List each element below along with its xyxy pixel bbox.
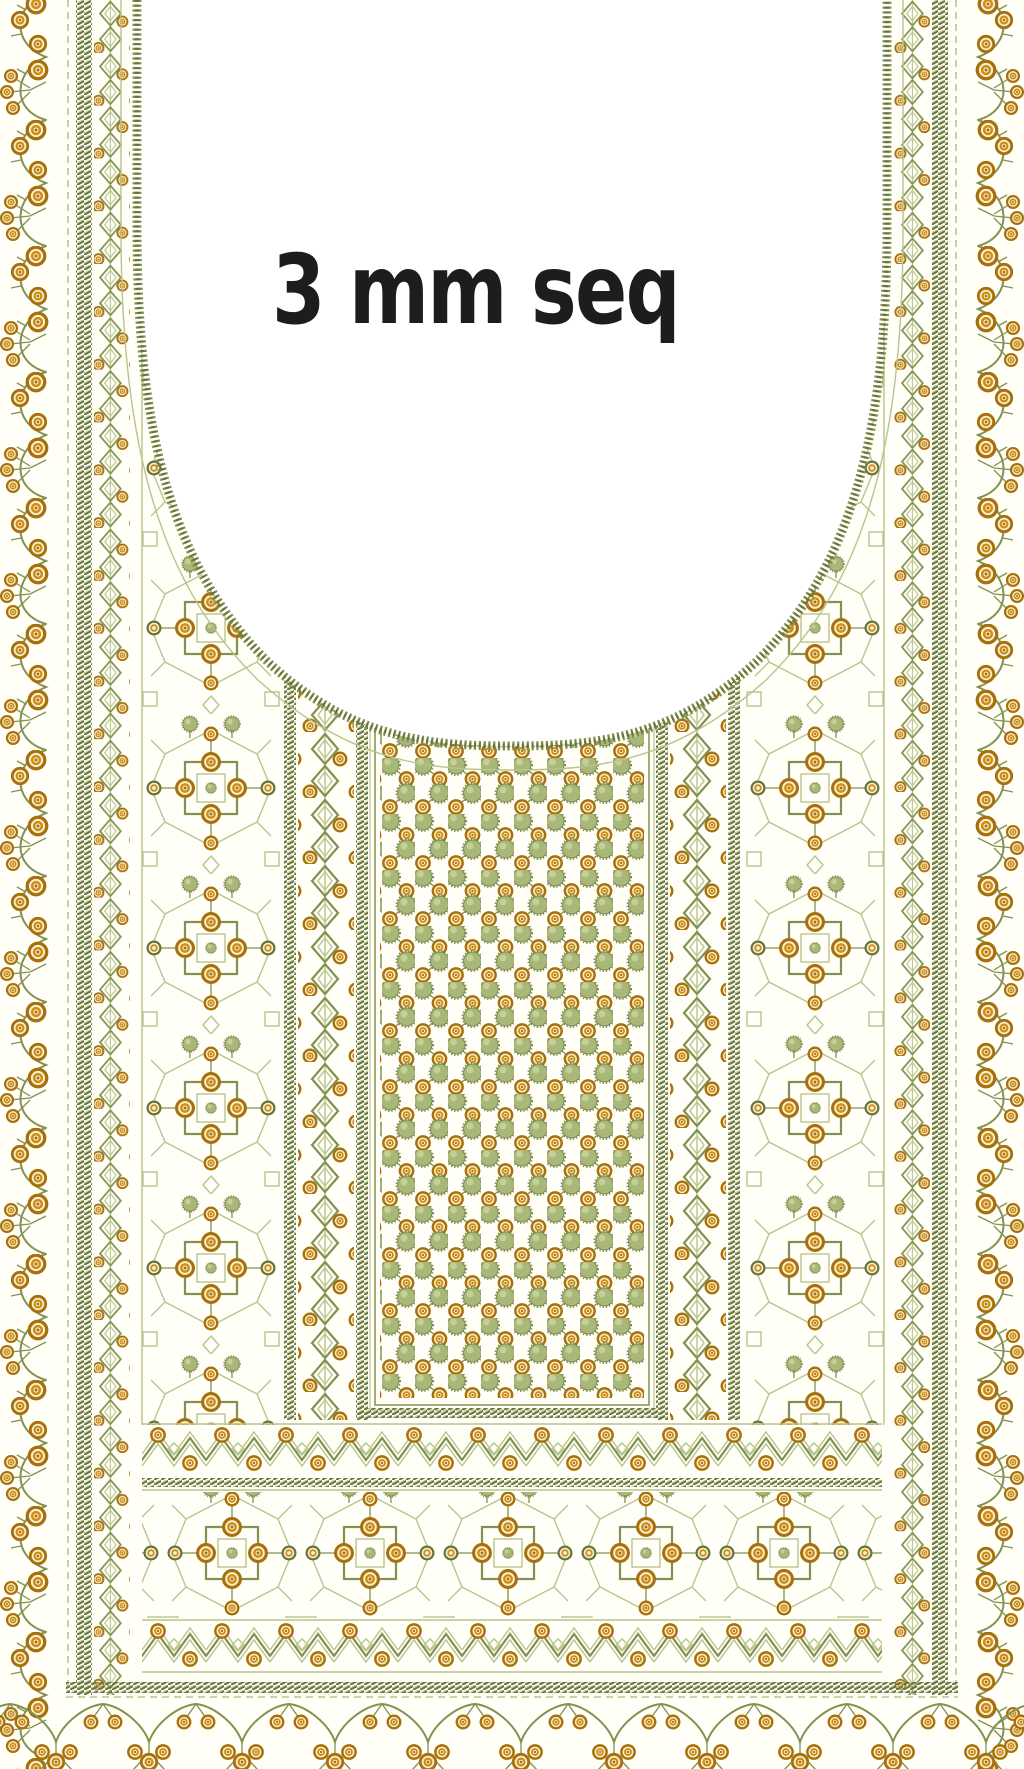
left-vine-border [0, 0, 62, 1769]
bottom-rope-band [66, 1682, 958, 1693]
chevron-band-1 [142, 1426, 882, 1472]
inner-right-chain-2 [728, 600, 740, 1420]
bottom-floral-garland [0, 1698, 1024, 1769]
bottom-star-field [142, 1492, 882, 1618]
chevron1-bottom-rope [142, 1478, 882, 1487]
left-chain-band [76, 0, 92, 1695]
center-panel-bottom-rope [356, 1408, 668, 1418]
right-chain-band [932, 0, 948, 1695]
neck-opening [137, 0, 887, 746]
inner-left-chain-1 [284, 600, 296, 1420]
right-vine-border [962, 0, 1024, 1769]
chevron-band-2 [142, 1622, 882, 1668]
embroidery-design-canvas: 3 mm seq [0, 0, 1024, 1769]
left-leaf-chain-band [94, 0, 130, 1695]
right-leaf-chain-band [894, 0, 930, 1695]
center-pom-sequin-panel [380, 650, 644, 1398]
inner-right-leaf-band [670, 600, 726, 1420]
inner-left-leaf-band [298, 600, 354, 1420]
sequin-size-label: 3 mm seq [272, 242, 679, 338]
